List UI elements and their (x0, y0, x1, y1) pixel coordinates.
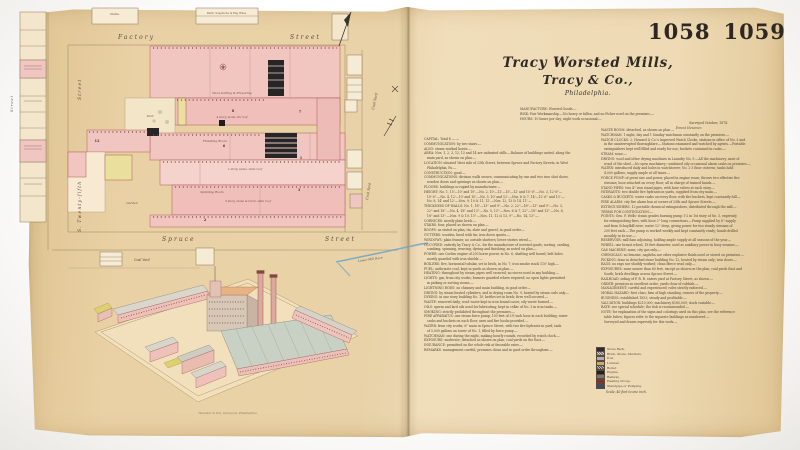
photograph-of-atlas-spread: Stable. Paint, Soapstone & Rag Whse. (0, 0, 800, 450)
four-story-label: 4 story, stone, tin roof (215, 115, 248, 119)
plate-numbers: 1058 1059 (648, 19, 778, 44)
twentyfifth-street-label: S. Twenty-fifth (77, 181, 83, 232)
title-line-3: Philadelphia. (452, 90, 724, 97)
plate-number-left: 1058 (648, 19, 710, 44)
mill-tower (210, 281, 221, 297)
finishing-room-label: Finishing Room (202, 139, 227, 143)
survey-text-column-1: CAPITAL: Total $ —.—COMMUNICATION: by tw… (424, 137, 596, 359)
legend-footer: Scale, 40 feet to one inch. (596, 390, 726, 395)
coal-yard-buildings (345, 55, 362, 208)
far-left-street-label: Street (10, 95, 14, 112)
legend-label: Brick, Stone, Shutters. (607, 352, 642, 356)
map-legend: Stone Back.Brick, Stone, Shutters.Iron.L… (596, 347, 726, 395)
stable-label: Stable. (110, 12, 120, 16)
west-street-building-strip (20, 12, 46, 222)
legend-row: Standpipe or Pumping. (596, 384, 726, 389)
coal-yard-label-2: Coal Yard (365, 182, 372, 200)
factory-street-label: Factory (117, 34, 155, 41)
legend-label: Stone Back. (607, 347, 625, 351)
legend-label: Standpipe or Pumping. (607, 384, 642, 388)
survey-title-block: Tracy Worsted Mills, Tracy & Co., Philad… (452, 55, 724, 97)
coal-yard-label-1: Coal Yard (371, 92, 379, 110)
three-story-label: 3 story, stone & brick, slate roof (225, 199, 272, 203)
birdseye-caption: Hexamer & Son, Surveyors, Philadelphia. (197, 411, 257, 415)
chimney-mark (219, 120, 225, 126)
yard-label: Yard (147, 114, 154, 118)
building-number: 12 (94, 139, 100, 143)
legend-rows: Stone Back.Brick, Stone, Shutters.Iron.L… (596, 347, 726, 388)
survey-text-line: REMARKS: management careful; premises cl… (424, 348, 596, 353)
legend-swatch (596, 384, 605, 389)
one-story-label: 1 story, stone, slate roof (228, 167, 263, 171)
legend-label: Engine. (607, 370, 619, 374)
south-outbuildings (100, 248, 214, 266)
survey-text-column-2: WASTE ROOM: detached, as shown on plan.—… (601, 128, 783, 342)
legend-label: Lumber. (607, 361, 620, 365)
plate-number-right: 1059 (723, 19, 785, 44)
spinning-room-label: Spinning Room (200, 190, 223, 194)
plan-map: Stable. Paint, Soapstone & Rag Whse. (10, 8, 428, 276)
pen-marks (384, 86, 398, 136)
spruce-street-label-2: Street (325, 236, 356, 243)
warehouse-label: Paint, Soapstone & Rag Whse. (207, 11, 247, 15)
title-line-1: Tracy Worsted Mills, (452, 55, 724, 71)
survey-text-line: Surveyed and drawn expressly for this wo… (601, 320, 783, 325)
wool-room-label: Wool Sorting & Preparing (212, 91, 252, 95)
legend-label: Heating Group. (607, 379, 631, 383)
legend-label: Railway. (607, 375, 620, 379)
legend-label: Iron. (607, 356, 614, 360)
garden-label: Garden (126, 201, 137, 205)
birdseye-view: Hexamer & Son, Surveyors, Philadelphia. (94, 266, 358, 415)
twentyfifth-street-label-2: Street (77, 79, 83, 100)
mill-buildings (68, 46, 345, 227)
frame-building-yellow (105, 155, 132, 180)
factory-street-label-2: Street (290, 34, 321, 41)
legend-label: Boiler. (607, 366, 617, 370)
coal-yard-label-3: Coal Yard (134, 258, 150, 262)
spruce-street-label: Spruce (162, 236, 196, 243)
building-number: 9 (221, 65, 225, 71)
title-line-2: Tracy & Co., (452, 73, 724, 87)
